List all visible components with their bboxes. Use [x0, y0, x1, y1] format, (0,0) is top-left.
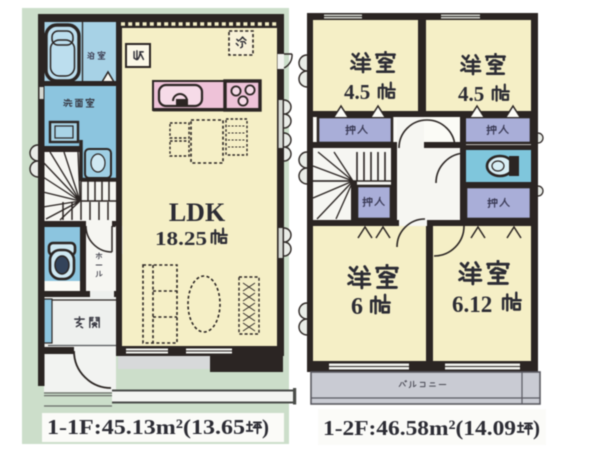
svg-text:LDK: LDK — [169, 198, 226, 227]
svg-text:6: 6 — [351, 294, 363, 320]
svg-text:): ) — [533, 416, 540, 440]
svg-text:1-2F:46.58m²(14.09: 1-2F:46.58m²(14.09 — [323, 416, 516, 440]
svg-text:): ) — [262, 415, 269, 439]
svg-text:18.25: 18.25 — [155, 228, 207, 250]
svg-text:1-1F:45.13m²(13.65: 1-1F:45.13m²(13.65 — [47, 415, 245, 439]
svg-text:4.5: 4.5 — [458, 82, 484, 106]
svg-text:4.5: 4.5 — [344, 80, 370, 104]
svg-text:6.12: 6.12 — [452, 292, 492, 317]
